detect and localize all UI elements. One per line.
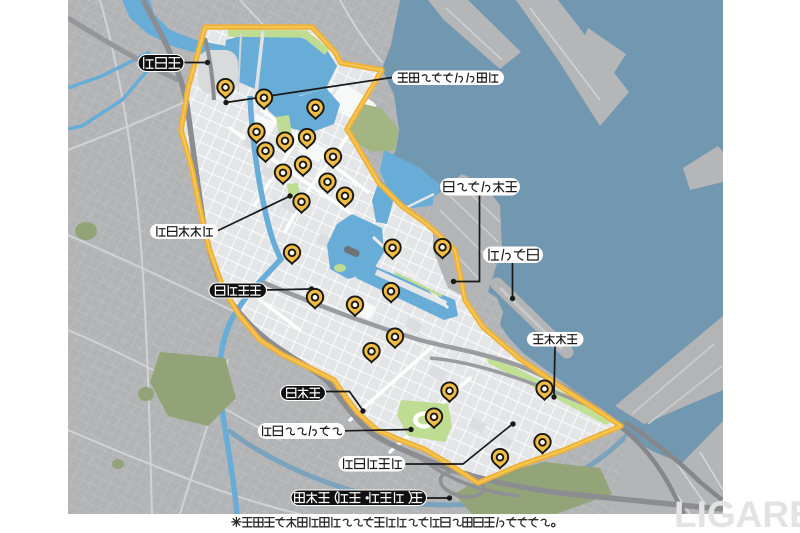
svg-text:LIGARE: LIGARE (674, 494, 800, 533)
